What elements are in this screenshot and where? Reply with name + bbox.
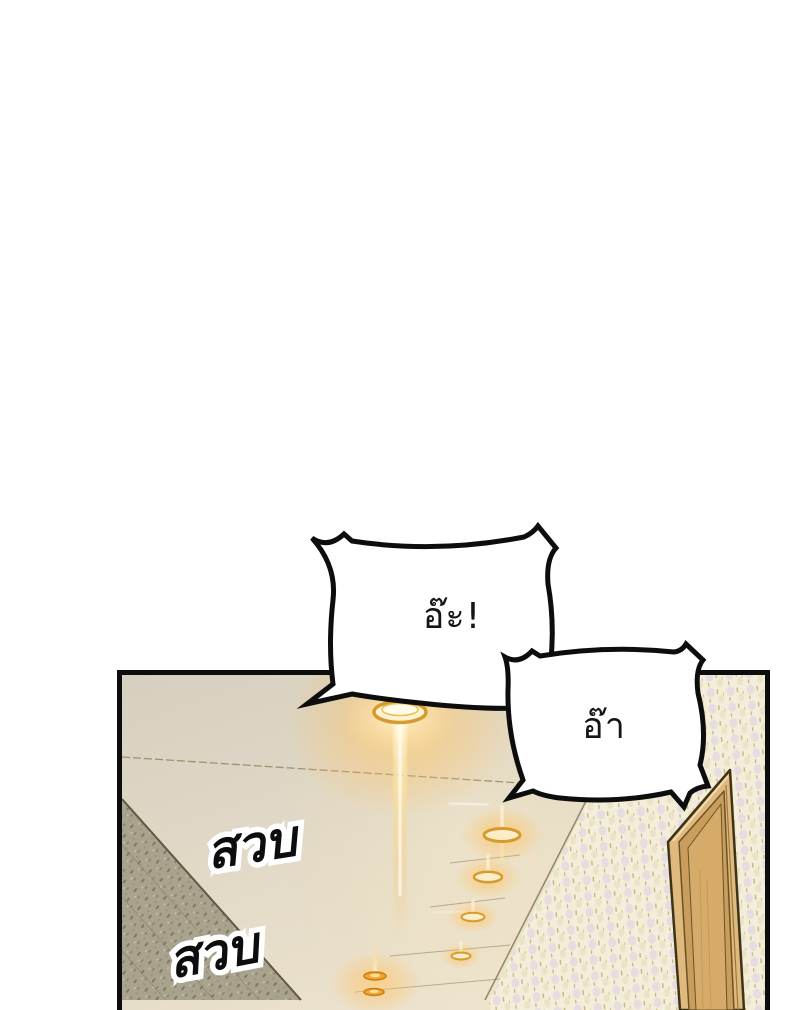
sfx-text-1: สวบ สวบ: [203, 813, 300, 877]
bubble-1-text: อ๊ะ!: [382, 594, 522, 639]
bubble-2-text: อ๊า: [534, 704, 674, 749]
comic-page: สวบ สวบ สวบ สวบ อ๊ะ! อ๊า: [0, 0, 800, 1000]
